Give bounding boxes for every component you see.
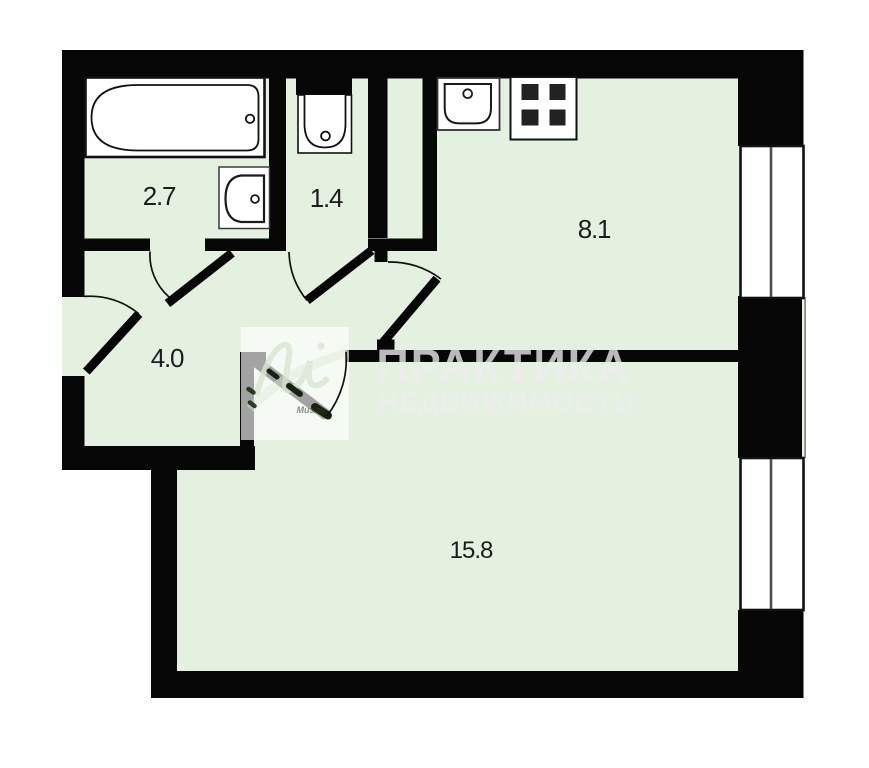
svg-text:15.8: 15.8	[450, 537, 493, 564]
svg-text:4.0: 4.0	[151, 343, 184, 373]
svg-text:НЕДВИЖИМОСТИ: НЕДВИЖИМОСТИ	[378, 387, 634, 418]
svg-text:ПРАКТИКА: ПРАКТИКА	[376, 340, 631, 391]
svg-text:Миэль: Миэль	[297, 405, 326, 415]
svg-text:8.1: 8.1	[578, 214, 611, 244]
svg-text:1.4: 1.4	[310, 183, 343, 213]
svg-text:2.7: 2.7	[143, 181, 176, 211]
